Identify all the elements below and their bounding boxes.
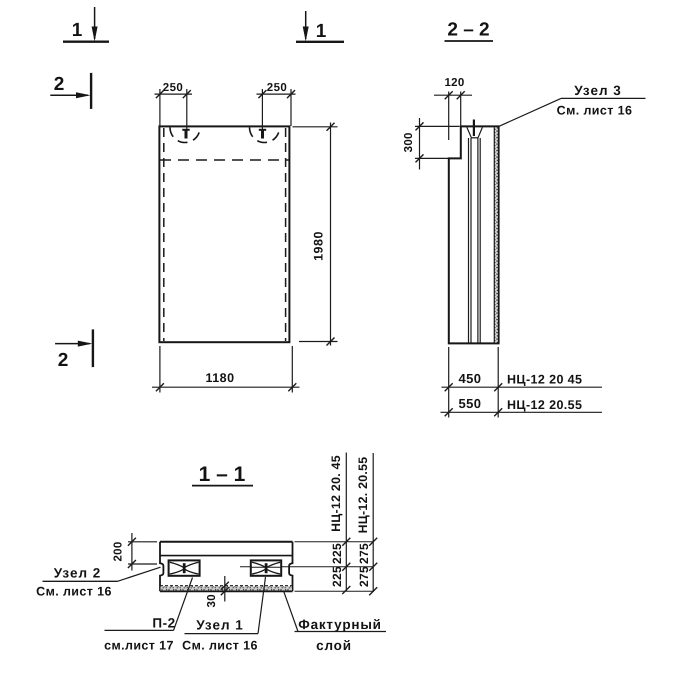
svg-text:НЦ-12 20. 45: НЦ-12 20. 45 [329, 455, 343, 532]
svg-text:НЦ-12. 20.55: НЦ-12. 20.55 [356, 457, 370, 534]
svg-text:225: 225 [330, 543, 344, 564]
svg-text:1980: 1980 [312, 231, 326, 261]
svg-text:250: 250 [163, 82, 183, 94]
svg-text:30: 30 [206, 594, 218, 607]
svg-text:1180: 1180 [205, 371, 234, 385]
svg-text:275: 275 [357, 543, 371, 564]
svg-text:Узел 1: Узел 1 [196, 618, 244, 633]
svg-text:550: 550 [459, 396, 482, 411]
svg-text:2: 2 [58, 350, 69, 371]
svg-text:275: 275 [357, 566, 371, 587]
svg-text:НЦ-12 20.55: НЦ-12 20.55 [507, 398, 582, 412]
svg-text:200: 200 [113, 541, 125, 561]
svg-text:1 – 1: 1 – 1 [199, 463, 246, 486]
svg-text:250: 250 [267, 82, 287, 94]
svg-text:См. лист 16: См. лист 16 [36, 585, 112, 599]
svg-text:450: 450 [459, 371, 482, 386]
svg-text:Узел 3: Узел 3 [574, 83, 622, 98]
svg-text:1: 1 [72, 20, 83, 41]
svg-text:П-2: П-2 [152, 616, 175, 631]
svg-text:225: 225 [330, 566, 344, 587]
svg-text:См. лист 16: См. лист 16 [557, 104, 633, 118]
svg-text:120: 120 [444, 77, 464, 89]
svg-text:1: 1 [316, 21, 327, 42]
svg-text:слой: слой [316, 638, 352, 653]
svg-text:2: 2 [54, 74, 65, 95]
svg-text:Фактурный: Фактурный [298, 617, 382, 632]
svg-text:НЦ-12 20 45: НЦ-12 20 45 [507, 373, 582, 387]
svg-text:300: 300 [403, 132, 415, 152]
svg-text:Узел 2: Узел 2 [54, 566, 102, 581]
svg-text:2 – 2: 2 – 2 [447, 20, 489, 41]
svg-text:см.лист 17: см.лист 17 [104, 639, 174, 653]
svg-text:См. лист 16: См. лист 16 [182, 639, 258, 653]
